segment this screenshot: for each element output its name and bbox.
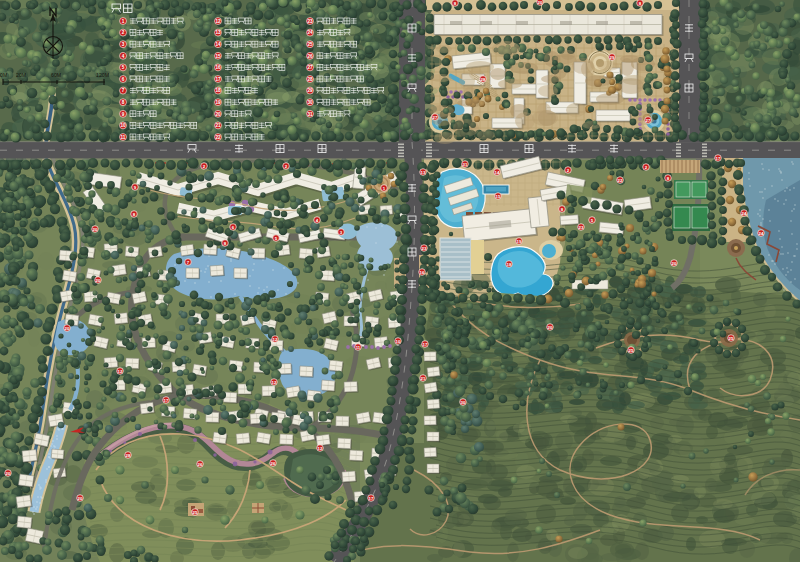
svg-text:16: 16	[215, 65, 221, 70]
svg-text:6: 6	[122, 77, 125, 82]
svg-text:17: 17	[716, 156, 721, 161]
svg-text:11: 11	[121, 135, 126, 140]
svg-text:3: 3	[122, 42, 125, 47]
svg-text:16: 16	[420, 270, 425, 275]
svg-text:10: 10	[396, 339, 401, 344]
svg-text:29: 29	[610, 55, 615, 60]
svg-text:25: 25	[193, 510, 198, 515]
svg-text:29: 29	[307, 88, 313, 93]
svg-text:20: 20	[78, 496, 83, 501]
svg-text:12: 12	[215, 19, 221, 24]
svg-text:12: 12	[272, 380, 277, 385]
svg-text:20M: 20M	[16, 72, 26, 78]
svg-text:12: 12	[318, 446, 323, 451]
svg-text:24: 24	[742, 211, 747, 216]
svg-text:21: 21	[215, 123, 221, 128]
svg-text:18: 18	[507, 262, 512, 267]
svg-text:27: 27	[433, 115, 438, 120]
svg-text:26: 26	[198, 462, 203, 467]
svg-text:26: 26	[271, 461, 276, 466]
svg-text:8: 8	[122, 100, 125, 105]
svg-text:20: 20	[538, 0, 543, 5]
svg-text:10: 10	[120, 123, 126, 128]
svg-text:25: 25	[307, 42, 313, 47]
svg-text:2: 2	[122, 30, 125, 35]
svg-text:20: 20	[548, 325, 553, 330]
svg-text:23: 23	[422, 246, 427, 251]
svg-text:20: 20	[6, 471, 11, 476]
svg-text:30: 30	[461, 400, 466, 405]
svg-text:19: 19	[215, 100, 221, 105]
svg-text:23: 23	[579, 225, 584, 230]
svg-text:31: 31	[463, 162, 468, 167]
svg-text:18: 18	[215, 88, 221, 93]
svg-text:13: 13	[421, 170, 426, 175]
svg-text:17: 17	[423, 342, 428, 347]
svg-text:21: 21	[421, 376, 426, 381]
svg-text:7: 7	[122, 88, 125, 93]
svg-text:1: 1	[122, 19, 125, 24]
svg-text:25: 25	[629, 348, 634, 353]
svg-text:15: 15	[215, 54, 221, 59]
svg-text:28: 28	[126, 453, 131, 458]
svg-text:20: 20	[215, 112, 221, 117]
svg-text:17: 17	[164, 398, 169, 403]
svg-text:24: 24	[307, 30, 313, 35]
svg-text:12: 12	[273, 337, 278, 342]
svg-text:20: 20	[96, 278, 101, 283]
svg-text:19: 19	[517, 239, 522, 244]
svg-text:17: 17	[369, 496, 374, 501]
svg-text:14: 14	[215, 42, 221, 47]
svg-text:28: 28	[307, 77, 313, 82]
svg-text:23: 23	[307, 19, 313, 24]
svg-text:28: 28	[481, 77, 486, 82]
svg-text:12: 12	[118, 369, 123, 374]
svg-text:27: 27	[646, 118, 651, 123]
svg-text:9: 9	[122, 112, 125, 117]
svg-text:14: 14	[495, 170, 500, 175]
svg-text:20: 20	[65, 326, 70, 331]
svg-text:27: 27	[307, 65, 313, 70]
svg-text:13: 13	[215, 30, 221, 35]
svg-text:22: 22	[618, 178, 623, 183]
svg-text:20: 20	[672, 261, 677, 266]
svg-text:4: 4	[122, 54, 125, 59]
svg-text:25: 25	[729, 336, 734, 341]
svg-text:11: 11	[356, 345, 361, 350]
svg-text:5: 5	[122, 65, 125, 70]
svg-text:30: 30	[307, 100, 313, 105]
svg-text:24: 24	[759, 231, 764, 236]
svg-text:0M: 0M	[0, 72, 7, 78]
svg-text:20: 20	[93, 227, 98, 232]
svg-text:120M: 120M	[96, 72, 109, 78]
svg-text:17: 17	[215, 77, 221, 82]
svg-text:31: 31	[307, 112, 313, 117]
svg-text:22: 22	[215, 135, 221, 140]
svg-text:60M: 60M	[51, 72, 61, 78]
svg-text:15: 15	[496, 194, 501, 199]
svg-text:26: 26	[307, 54, 313, 59]
